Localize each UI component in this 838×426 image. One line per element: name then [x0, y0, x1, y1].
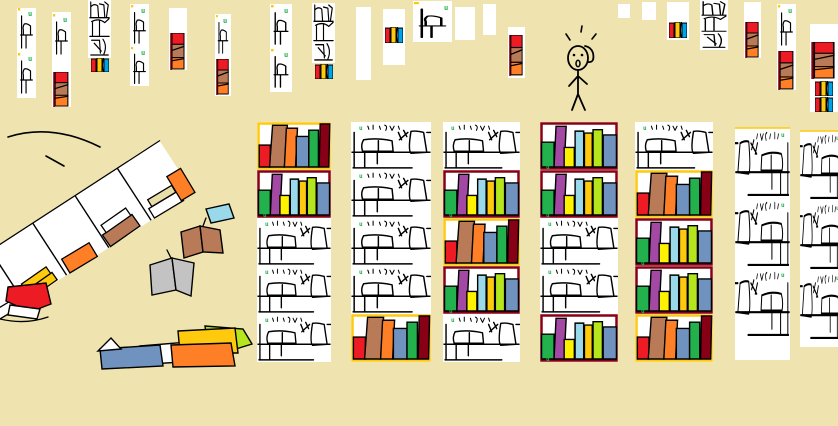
background-shelf-strip: u: [215, 14, 231, 96]
book-yellow[interactable]: [280, 195, 290, 215]
shelf-marker-u: u: [781, 202, 785, 209]
shelf-row-colored-cool[interactable]: u: [542, 316, 617, 364]
book-bluegray[interactable]: [505, 183, 518, 215]
book-orange[interactable]: [284, 128, 297, 167]
book-bluegray[interactable]: [698, 231, 711, 263]
shelf-marker-u: u: [548, 221, 552, 228]
book-stack-red-brown-orange: [510, 35, 522, 76]
book-yellow[interactable]: [659, 243, 669, 263]
shelf-marker-u: u: [449, 308, 453, 315]
background-shelf-strip: [356, 7, 371, 80]
book-bluegray[interactable]: [505, 279, 518, 311]
book-darkred[interactable]: [418, 316, 429, 359]
book-cluster-red-gold-blue: [315, 64, 333, 79]
shelf-marker-u: u: [781, 132, 785, 139]
shelf-row-colored-cool[interactable]: u: [445, 268, 519, 316]
book-darkred[interactable]: [319, 124, 330, 167]
shelf-marker-u: u: [643, 125, 647, 132]
book-darkred[interactable]: [508, 220, 519, 263]
shelf-marker-u: u: [141, 49, 145, 57]
book-cluster-red-gold-blue: [815, 97, 833, 112]
eye-left: [573, 54, 576, 57]
background-shelf-strip: u: [52, 12, 71, 107]
book-yellow[interactable]: [564, 195, 574, 215]
book-lightblue[interactable]: [670, 275, 679, 311]
shelf-marker-u: u: [28, 10, 32, 18]
shelf-row-colored-warm[interactable]: [637, 172, 712, 217]
background-shelf-strip: [642, 2, 656, 20]
background-shelf-strip: uu: [17, 8, 36, 98]
background-shelf-strip: [508, 27, 525, 78]
background-shelf-strip: [700, 0, 728, 50]
book-red[interactable]: [445, 241, 457, 263]
book-cluster-red-gold-blue: [91, 58, 109, 72]
shelf-marker-u: u: [359, 125, 363, 132]
shelf-marker-u: u: [451, 317, 455, 324]
background-shelf-strip: [88, 0, 111, 58]
book-red[interactable]: [353, 337, 365, 359]
shelf-marker-u: u: [63, 16, 67, 24]
shelf-marker-u: u: [449, 212, 453, 219]
drawing-canvas[interactable]: uuuuuuuuuuuuuuuuuuuuuuuuuuuuuuuuuuuu: [0, 0, 838, 426]
shelf-marker-u: u: [359, 269, 363, 276]
background-shelf-strip: [810, 24, 838, 112]
book-green[interactable]: [309, 130, 319, 167]
background-shelf-strip: [315, 64, 333, 79]
book-lightblue[interactable]: [478, 275, 486, 311]
book-orange[interactable]: [664, 176, 678, 215]
bookcase-1[interactable]: uuuu: [257, 122, 331, 362]
library-drawing: uuuuuuuuuuuuuuuuuuuuuuuuuuuuuuuuuuuu: [0, 0, 838, 426]
book-gold[interactable]: [584, 133, 592, 167]
strip-paper: [455, 7, 475, 40]
shelf-marker-u: u: [223, 17, 227, 25]
book-bluegray[interactable]: [603, 135, 616, 167]
book-red[interactable]: [259, 145, 270, 167]
shelf-marker-u: u: [265, 221, 269, 228]
book-gold[interactable]: [487, 277, 495, 311]
shelf-row-colored-cool[interactable]: u: [258, 172, 329, 220]
shelf-marker-u: u: [141, 7, 145, 15]
book-gold[interactable]: [299, 181, 306, 215]
book-darkred[interactable]: [701, 172, 712, 215]
shelf-row-colored-cool[interactable]: u: [637, 220, 712, 268]
shelf-row-colored-cool[interactable]: u: [542, 124, 617, 172]
shelf-marker-u: u: [284, 51, 288, 59]
book-darkred[interactable]: [701, 316, 712, 359]
shelf-marker-u: u: [788, 7, 792, 15]
shelf-marker-u: u: [451, 125, 455, 132]
book-yellow[interactable]: [564, 147, 574, 167]
book-lightblue[interactable]: [575, 131, 584, 167]
shelf-row-colored-warm[interactable]: [637, 316, 712, 361]
book-red[interactable]: [637, 337, 649, 359]
book-bluegray[interactable]: [317, 183, 330, 215]
shelf-row-colored-warm[interactable]: [353, 316, 430, 361]
shelf-marker-u: u: [641, 260, 645, 267]
book-yellow[interactable]: [659, 291, 669, 311]
book-stack-red-brown-orange: [54, 72, 68, 107]
book-orange[interactable]: [664, 320, 678, 359]
book-lime[interactable]: [593, 178, 602, 215]
book-red[interactable]: [637, 193, 649, 215]
book-orange[interactable]: [381, 320, 395, 359]
background-shelf-strip: [455, 7, 475, 40]
book-green[interactable]: [690, 322, 700, 359]
background-shelf-strip: [483, 4, 496, 35]
book-green[interactable]: [407, 322, 417, 359]
shelf-row-colored-warm[interactable]: [259, 124, 330, 169]
book-orange[interactable]: [471, 224, 485, 263]
shelf-marker-u: u: [263, 212, 267, 219]
background-shelf-strip: [91, 58, 109, 72]
background-shelf-strip: [312, 3, 335, 63]
shelf-marker-u: u: [28, 55, 32, 63]
bookcase-5[interactable]: uuu: [635, 122, 713, 362]
book-cluster-red-gold-blue: [669, 22, 687, 38]
shelf-row-colored-cool[interactable]: u: [445, 172, 519, 220]
book-lime[interactable]: [688, 274, 697, 311]
book-gold[interactable]: [584, 181, 592, 215]
book-green[interactable]: [690, 178, 700, 215]
book-lime[interactable]: [688, 226, 697, 263]
book-lightblue[interactable]: [290, 179, 298, 215]
bookcase-paper: [735, 128, 790, 360]
book-stack-red-brown-orange: [746, 22, 758, 58]
background-shelf-strip: u: [413, 1, 452, 42]
book-lime[interactable]: [593, 322, 602, 359]
book-lime[interactable]: [593, 130, 602, 167]
book-cluster-red-gold-blue: [815, 81, 833, 96]
background-shelf-strip: u: [777, 4, 796, 90]
shelf-marker-u: u: [548, 269, 552, 276]
shelf-marker-u: u: [444, 4, 448, 12]
background-shelf-strip: [618, 4, 630, 18]
book-lightblue[interactable]: [670, 227, 679, 263]
book-lightblue[interactable]: [478, 179, 486, 215]
strip-paper: [618, 4, 630, 18]
bookcase-4[interactable]: uuuuu: [540, 122, 618, 363]
shelf-marker-u: u: [546, 212, 550, 219]
book-bluegray[interactable]: [603, 183, 616, 215]
shelf-marker-u: u: [284, 7, 288, 15]
shelf-marker-u: u: [359, 173, 363, 180]
book-green[interactable]: [497, 226, 507, 263]
shelf-marker-u: u: [265, 269, 269, 276]
shelf-row-colored-cool[interactable]: u: [542, 172, 617, 220]
strip-paper: [642, 2, 656, 20]
shelf-marker-u: u: [546, 356, 550, 363]
background-shelf-strip: [744, 2, 761, 58]
book-yellow[interactable]: [467, 195, 477, 215]
book-stack-red-brown-orange: [217, 59, 228, 95]
book-gold[interactable]: [584, 325, 592, 359]
background-shelf-strip: [383, 9, 405, 65]
book-gold[interactable]: [679, 277, 687, 311]
bookcase-3[interactable]: uuuu: [443, 122, 520, 362]
book-gold[interactable]: [679, 229, 687, 263]
book-bluegray[interactable]: [676, 328, 689, 359]
background-shelf-strip: [667, 2, 689, 40]
book-bluegray[interactable]: [296, 136, 309, 167]
shelf-row-colored-cool[interactable]: u: [637, 268, 712, 316]
eye-right: [581, 54, 584, 57]
book-yellow[interactable]: [467, 291, 477, 311]
book-bluegray[interactable]: [393, 328, 407, 359]
book-lime[interactable]: [495, 178, 504, 215]
book-bluegray[interactable]: [676, 184, 689, 215]
strip-paper: [356, 7, 371, 80]
bookcase-2[interactable]: uuuu: [351, 122, 431, 362]
background-shelf-strip: [169, 8, 187, 70]
shelf-marker-u: u: [546, 164, 550, 171]
background-shelf-strip: uu: [130, 4, 149, 86]
shelf-marker-u: u: [641, 308, 645, 315]
book-bluegray[interactable]: [484, 232, 497, 263]
book-lime[interactable]: [495, 274, 504, 311]
book-stack-red-brown-orange: [779, 51, 793, 90]
book-bluegray[interactable]: [603, 327, 616, 359]
book-gold[interactable]: [487, 181, 495, 215]
book-shape-brown: [181, 226, 203, 258]
shelf-marker-u: u: [781, 272, 785, 279]
side-bookcase-1[interactable]: uuu: [735, 128, 790, 360]
shelf-row-colored-warm[interactable]: [445, 220, 519, 265]
book-shape-brown: [200, 226, 223, 253]
book-lime[interactable]: [307, 178, 316, 215]
book-lightblue[interactable]: [575, 179, 584, 215]
strip-paper: [483, 4, 496, 35]
background-shelf-strip: uu: [270, 4, 292, 92]
book-yellow[interactable]: [564, 339, 574, 359]
side-bookcase-2[interactable]: uuu: [800, 131, 838, 347]
book-shape-orange: [171, 343, 235, 367]
book-lightblue[interactable]: [575, 323, 584, 359]
shelf-marker-u: u: [359, 221, 363, 228]
book-stack-red-brown-orange: [171, 33, 184, 70]
shelf-marker-u: u: [265, 317, 269, 324]
book-bluegray[interactable]: [698, 279, 711, 311]
book-cluster-red-gold-blue: [385, 27, 403, 43]
book-stack-red-brown-orange: [813, 42, 834, 79]
